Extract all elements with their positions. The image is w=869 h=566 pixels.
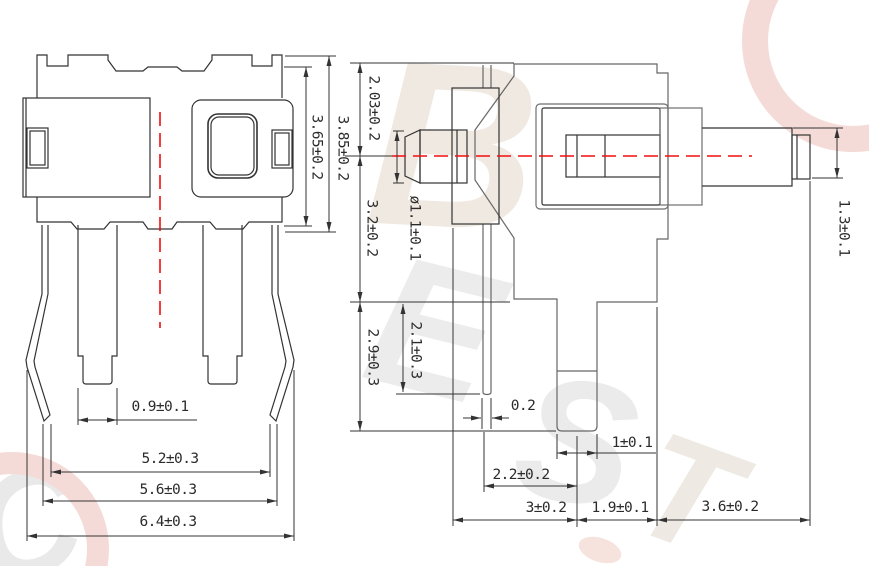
front-leg-span-dimension: 5.6±0.3 [140, 483, 197, 498]
front-width-overall-dimension: 6.4±0.3 [140, 515, 197, 530]
side-view-outline [475, 64, 668, 431]
side-pin-diameter-dimension: ø1.1±0.1 [407, 195, 422, 260]
front-height-overall-dimension: 3.85±0.2 [335, 115, 350, 180]
side-pin-to-terminal-dimension: 2.2±0.2 [493, 468, 550, 483]
side-shaft-tip-height-dimension: 1.3±0.1 [836, 200, 851, 257]
drawing-canvas: B E S T C [0, 0, 869, 566]
front-view-dimension-lines [27, 56, 336, 541]
side-center-to-base-dimension: 3.2±0.2 [364, 200, 379, 257]
side-base-left-dimension: 3±0.2 [526, 501, 567, 516]
side-base-right-dimension: 1.9±0.1 [592, 501, 649, 516]
side-top-to-center-dimension: 2.03±0.2 [366, 75, 381, 140]
side-pin-thickness-dimension: 0.2 [511, 399, 535, 414]
front-view-outline [23, 55, 294, 421]
front-leg-pitch-dimension: 5.2±0.3 [142, 452, 199, 467]
front-height-body-dimension: 3.65±0.2 [309, 114, 324, 179]
technical-drawing [0, 0, 869, 566]
front-leg-width-dimension: 0.9±0.1 [132, 400, 189, 415]
side-pin-length-dimension: 2.1±0.3 [408, 322, 423, 379]
side-base-to-leg-end-dimension: 2.9±0.3 [365, 329, 380, 386]
side-terminal-width-dimension: 1±0.1 [612, 436, 653, 451]
side-shaft-length-dimension: 3.6±0.2 [702, 500, 759, 515]
